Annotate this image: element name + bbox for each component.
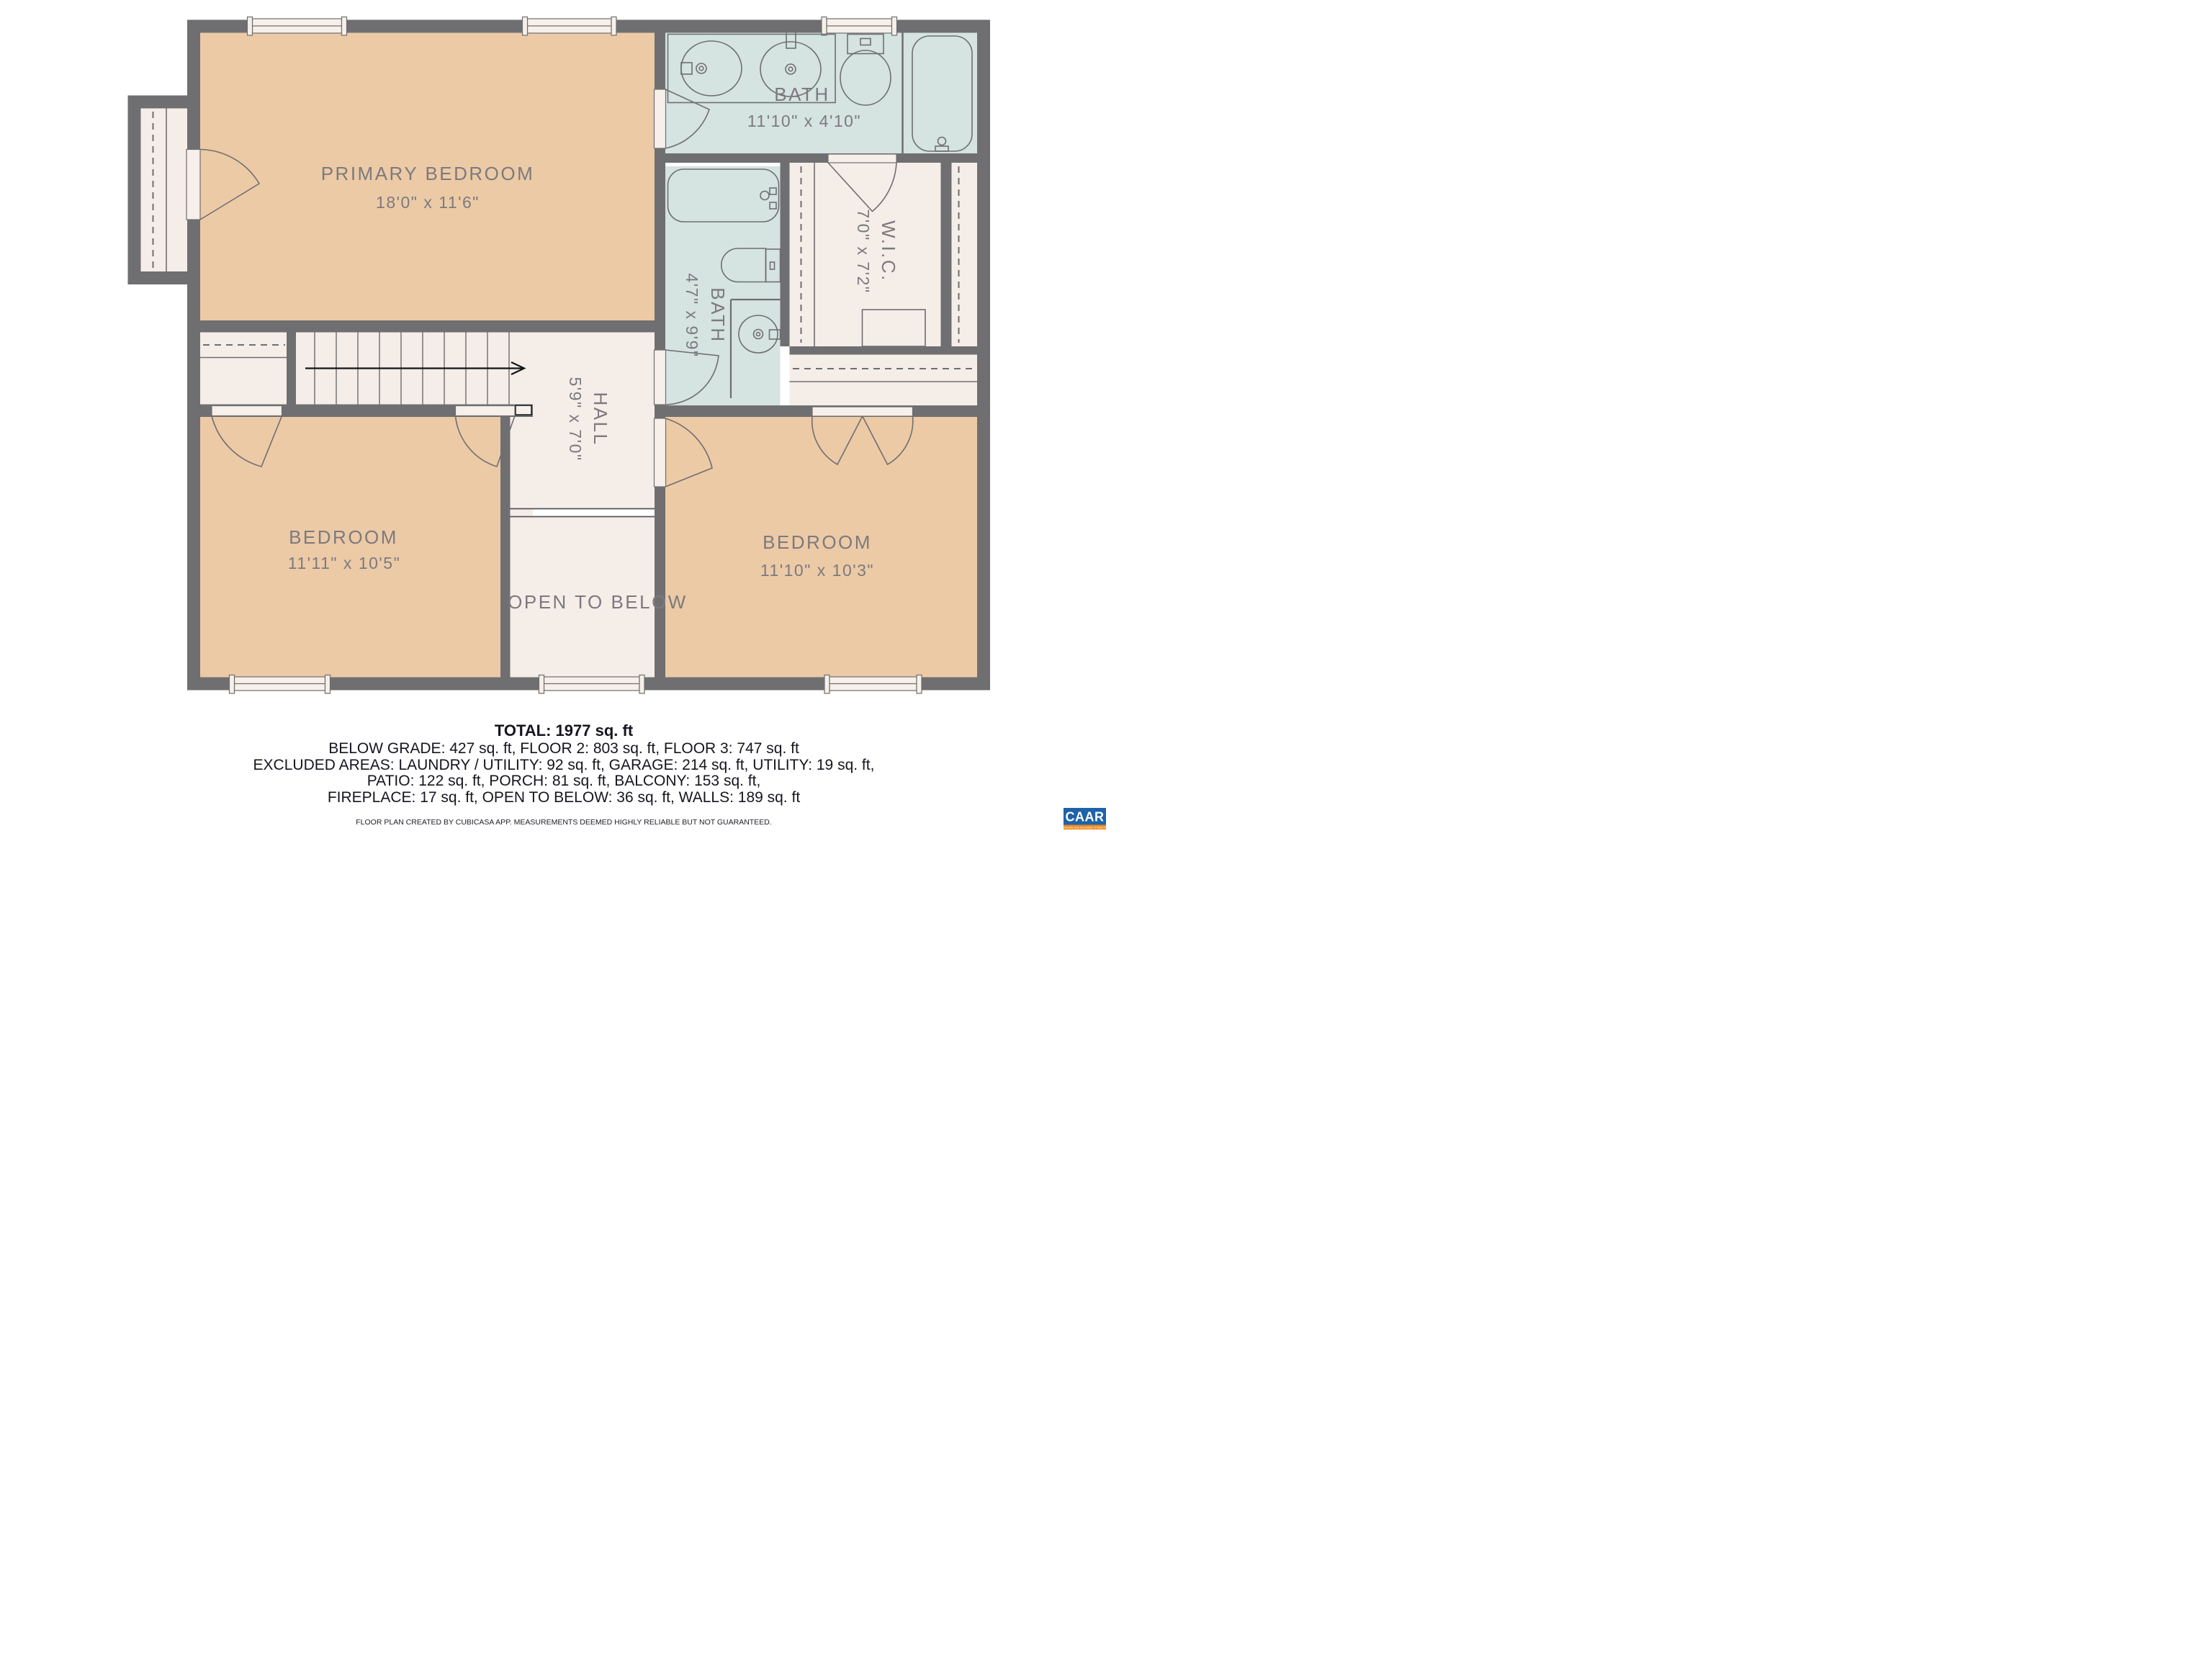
room-closet-left (200, 333, 287, 405)
wall-closet-bump-left (128, 96, 141, 285)
wall-primary-south (200, 320, 665, 333)
summary-line: BELOW GRADE: 427 sq. ft, FLOOR 2: 803 sq… (328, 740, 799, 757)
label-bedroom-left-dims: 11'11" x 10'5" (288, 554, 401, 572)
room-closet-right (790, 355, 978, 406)
label-open-to-below: OPEN TO BELOW (508, 591, 688, 613)
window-bedroom-right (824, 675, 922, 694)
label-wic-dims: 7'0" x 7'2" (854, 209, 873, 293)
label-bedroom-left: BEDROOM (289, 526, 398, 548)
wall-exterior-left (187, 20, 200, 691)
summary-line: EXCLUDED AREAS: LAUNDRY / UTILITY: 92 sq… (253, 757, 875, 773)
window-open-to-below (539, 675, 645, 694)
room-bath-mid (665, 166, 781, 405)
summary-line: FIREPLACE: 17 sq. ft, OPEN TO BELOW: 36 … (328, 789, 800, 806)
label-primary-bedroom-dims: 18'0" x 11'6" (376, 193, 480, 212)
summary-disclaimer: FLOOR PLAN CREATED BY CUBICASA APP. MEAS… (356, 818, 771, 827)
label-bath-mid-dims: 4'7" x 9'9" (683, 273, 701, 357)
door-sill-closet-right (812, 407, 913, 416)
summary-total: TOTAL: 1977 sq. ft (495, 721, 634, 739)
window-primary-1 (248, 17, 347, 36)
label-bedroom-right-dims: 11'10" x 10'3" (760, 561, 874, 580)
room-right-strip (952, 163, 978, 346)
door-leaf-wic (828, 154, 896, 163)
label-bath-mid: BATH (707, 287, 729, 343)
door-leaf-bedroom-right (655, 418, 666, 487)
label-bath-top: BATH (774, 84, 829, 105)
label-hall: HALL (590, 392, 611, 446)
wall-otb-west (500, 417, 511, 678)
wall-bathmid-wic (781, 163, 790, 346)
label-bedroom-right: BEDROOM (763, 531, 872, 553)
door-sill-bedroom-left (456, 406, 516, 416)
window-primary-2 (523, 17, 617, 36)
wall-bath-top-south (665, 153, 977, 163)
label-bath-top-dims: 11'10" x 4'10" (747, 112, 861, 130)
label-wic: W.I.C. (878, 220, 899, 282)
window-bath-top (822, 17, 897, 36)
door-sill-closet-left (212, 406, 282, 416)
wall-closet-bump-bottom (128, 271, 201, 284)
door-leaf-bath-mid (655, 350, 666, 405)
room-hall-sliver (511, 405, 534, 517)
window-bedroom-left (230, 675, 331, 694)
stair-newel-post (516, 405, 531, 415)
label-primary-bedroom: PRIMARY BEDROOM (321, 163, 535, 184)
floor-plan-canvas: PRIMARY BEDROOM 18'0" x 11'6" BATH 11'10… (0, 0, 1106, 829)
wall-closet-stairs-divider (287, 333, 296, 405)
caar-logo: CAAR Charlottesville Area Association of… (1057, 808, 1106, 829)
floor-plan-page: PRIMARY BEDROOM 18'0" x 11'6" BATH 11'10… (0, 0, 1106, 829)
wall-wic-east (941, 163, 952, 346)
door-leaf-bath-top (655, 89, 666, 148)
door-leaf-primary-closet (186, 150, 200, 220)
label-hall-dims: 5'9" x 7'0" (566, 377, 585, 461)
summary-line: PATIO: 122 sq. ft, PORCH: 81 sq. ft, BAL… (367, 773, 761, 789)
wall-exterior-right (977, 20, 990, 691)
wall-wic-south (790, 346, 978, 355)
caar-logo-text: CAAR (1066, 810, 1105, 824)
caar-logo-tagline: Charlottesville Area Association of REAL… (1057, 827, 1106, 829)
